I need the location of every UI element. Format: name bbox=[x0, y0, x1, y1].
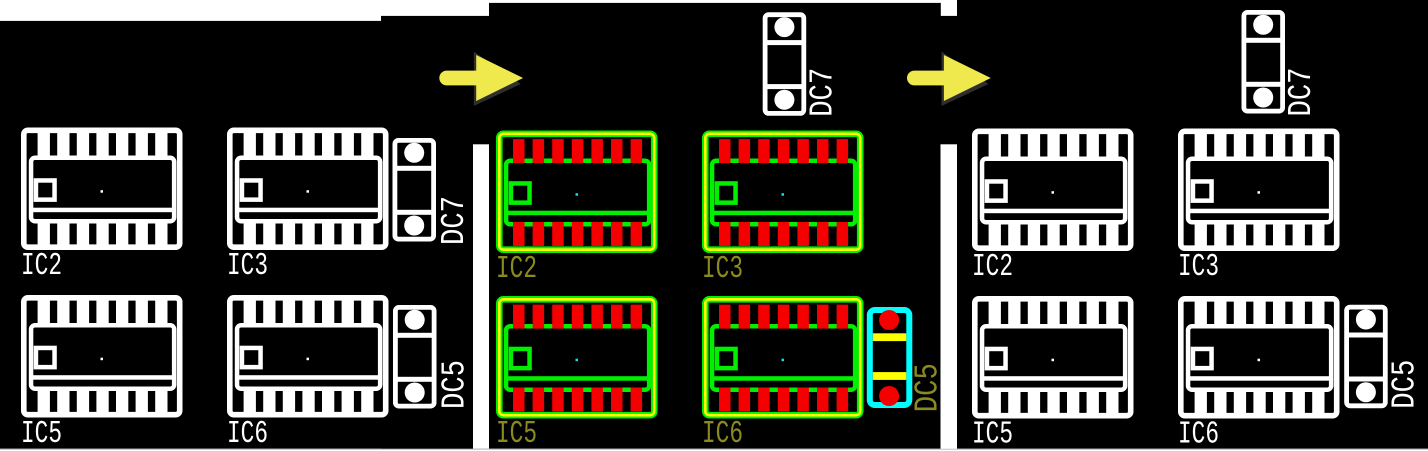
svg-text:IC3: IC3 bbox=[227, 249, 268, 284]
svg-text:IC6: IC6 bbox=[1178, 418, 1219, 451]
svg-text:IC2: IC2 bbox=[496, 252, 537, 287]
svg-text:IC2: IC2 bbox=[972, 250, 1013, 285]
svg-text:DC5: DC5 bbox=[437, 360, 474, 409]
svg-text:DC5: DC5 bbox=[1387, 360, 1424, 409]
svg-text:IC6: IC6 bbox=[227, 417, 268, 451]
svg-text:IC5: IC5 bbox=[496, 417, 537, 451]
svg-text:IC5: IC5 bbox=[21, 417, 62, 451]
svg-text:IC6: IC6 bbox=[702, 417, 743, 451]
svg-text:IC3: IC3 bbox=[1178, 250, 1219, 285]
svg-text:IC3: IC3 bbox=[702, 252, 743, 287]
svg-text:DC5: DC5 bbox=[910, 363, 947, 412]
svg-text:DC7: DC7 bbox=[436, 196, 473, 245]
svg-text:IC5: IC5 bbox=[972, 418, 1013, 451]
svg-text:DC7: DC7 bbox=[805, 68, 842, 117]
svg-text:DC7: DC7 bbox=[1283, 68, 1320, 117]
svg-text:IC2: IC2 bbox=[21, 249, 62, 284]
